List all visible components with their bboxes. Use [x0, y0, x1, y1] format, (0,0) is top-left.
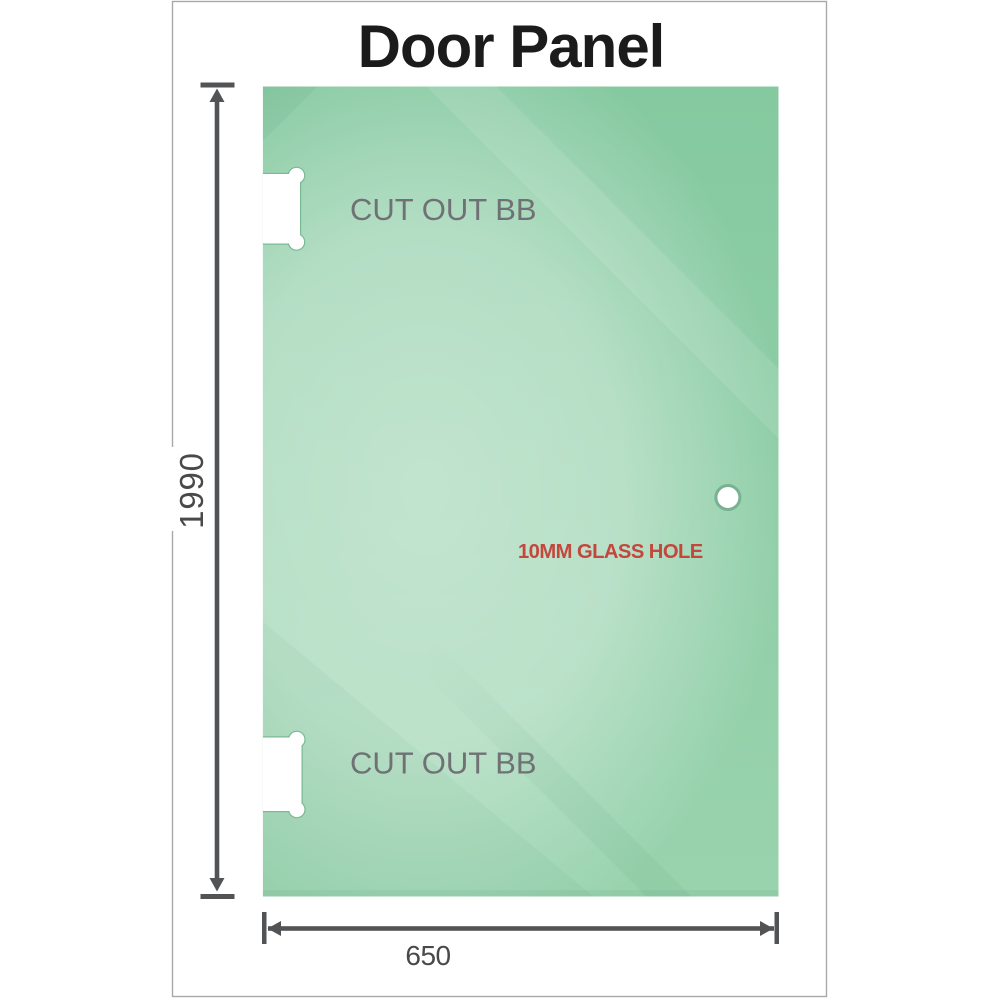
svg-text:Door Panel: Door Panel — [358, 13, 665, 80]
svg-text:CUT OUT BB: CUT OUT BB — [350, 192, 537, 227]
svg-text:10MM GLASS HOLE: 10MM GLASS HOLE — [518, 541, 703, 563]
svg-text:650: 650 — [405, 940, 450, 971]
svg-text:1990: 1990 — [173, 452, 210, 529]
svg-text:CUT OUT BB: CUT OUT BB — [350, 746, 537, 781]
